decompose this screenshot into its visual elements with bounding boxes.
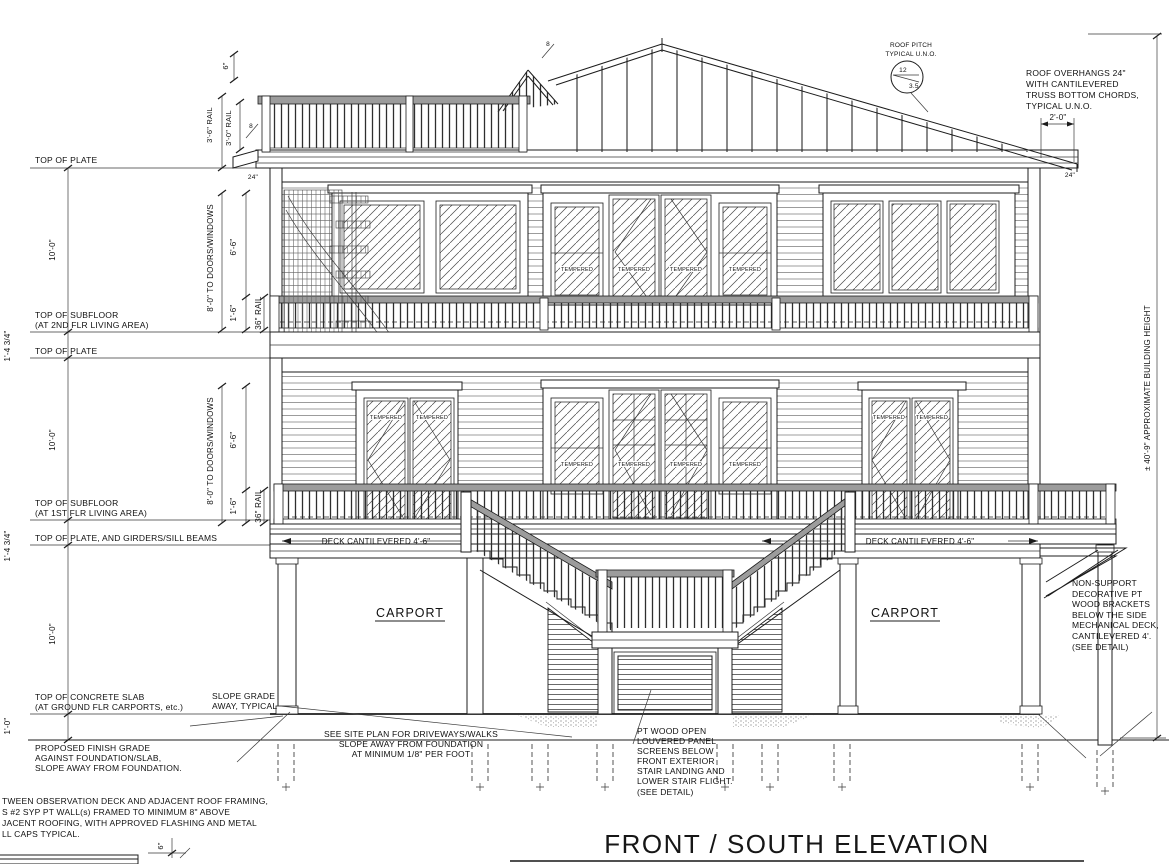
grade-note-line2: AGAINST FOUNDATION/SLAB, <box>35 753 161 763</box>
dim-plate-band-upper: 1'-4 3/4" <box>3 330 12 361</box>
roof-overhang-note: ROOF OVERHANGS 24" WITH CANTILEVERED TRU… <box>1026 68 1139 162</box>
tempered-label: TEMPERED <box>618 462 650 468</box>
third-floor-right-window <box>819 185 1019 301</box>
overhang-note-line4: TYPICAL U.N.O. <box>1026 101 1092 111</box>
drawing-title: FRONT / SOUTH ELEVATION <box>604 829 990 859</box>
bracket-note-line4: BELOW THE SIDE <box>1072 610 1147 620</box>
louver-note-line1: PT WOOD OPEN <box>637 726 706 736</box>
bracket-note-line5: MECHANICAL DECK, <box>1072 620 1159 630</box>
dim-24in-left: 24" <box>248 174 259 181</box>
elevation-sheet: TOP OF PLATE TOP OF SUBFLOOR (AT 2ND FLR… <box>0 0 1169 864</box>
louver-note-line4: FRONT EXTERIOR <box>637 756 715 766</box>
bracket-note-line2: DECORATIVE PT <box>1072 589 1142 599</box>
left-level-labels: TOP OF PLATE TOP OF SUBFLOOR (AT 2ND FLR… <box>35 155 217 773</box>
bottom-left-detail: 6" <box>0 838 190 864</box>
dim-3-6-rail: 3'-6" RAIL <box>205 107 214 143</box>
roof-pitch-note-line1: ROOF PITCH <box>890 42 932 49</box>
second-floor: TEMPERED TEMPERED TEMPERED TEMPERED TEMP… <box>270 358 1116 558</box>
eave-band <box>233 150 1078 168</box>
dim-grade-depth: 1'-0" <box>3 718 12 735</box>
tempered-label: TEMPERED <box>416 415 448 421</box>
title-block: FRONT / SOUTH ELEVATION <box>510 829 1084 861</box>
tempered-label: TEMPERED <box>729 267 761 273</box>
dim-1-6-3rd: 1'-6" <box>229 305 238 322</box>
louver-note-line2: LOUVERED PANEL <box>637 736 716 746</box>
grade-note-line1: PROPOSED FINISH GRADE <box>35 743 150 753</box>
third-floor: TEMPERED TEMPERED TEMPERED TEMPERED <box>270 168 1040 356</box>
dim-building-height: ± 40'-9" APPROXIMATE BUILDING HEIGHT <box>1143 305 1152 471</box>
dim-floor-height-1st: 10'-0" <box>48 623 57 645</box>
louvered-panel <box>598 648 732 714</box>
pitch-rise-label: 12 <box>899 67 907 74</box>
level-label-subfloor-1st: TOP OF SUBFLOOR <box>35 498 118 508</box>
site-note-line1: SEE SITE PLAN FOR DRIVEWAYS/WALKS <box>324 729 498 739</box>
louver-note-line6: LOWER STAIR FLIGHT. <box>637 776 733 786</box>
tempered-label: TEMPERED <box>729 462 761 468</box>
dim-deck-cantilever-right: DECK CANTILEVERED 4'-6" <box>866 537 975 546</box>
site-note-line2: SLOPE AWAY FROM FOUNDATION <box>339 739 483 749</box>
level-label-plate-girders: TOP OF PLATE, AND GIRDERS/SILL BEAMS <box>35 533 217 543</box>
tempered-label: TEMPERED <box>618 267 650 273</box>
roof-pitch-note-line2: TYPICAL U.N.O. <box>885 51 936 58</box>
louver-note-line3: SCREENS BELOW <box>637 746 714 756</box>
dim-6-6-3rd: 6'-6" <box>229 239 238 256</box>
overhang-note-line1: ROOF OVERHANGS 24" <box>1026 68 1126 78</box>
dim-deck-cantilever-left: DECK CANTILEVERED 4'-6" <box>322 537 431 546</box>
main-gable-roof <box>540 38 1080 172</box>
tempered-label: TEMPERED <box>561 267 593 273</box>
dim-2-0-overhang: 2'-0" <box>1050 113 1067 122</box>
carport-label-left: CARPORT <box>376 606 444 620</box>
dim-doors-windows-3rd: 8'-0" TO DOORS/WINDOWS <box>206 204 215 312</box>
dim-36-rail-3rd: 36" RAIL <box>254 296 263 330</box>
dim-36-rail-2nd: 36" RAIL <box>254 489 263 523</box>
tempered-label: TEMPERED <box>670 462 702 468</box>
window-dimension-chain-3rd: 8'-0" TO DOORS/WINDOWS 6'-6" 1'-6" 36" R… <box>206 190 268 333</box>
overhang-note-line2: WITH CANTILEVERED <box>1026 79 1119 89</box>
third-floor-center-doors: TEMPERED TEMPERED TEMPERED TEMPERED <box>541 185 779 305</box>
pitch-run-label: 3.5 <box>909 83 919 90</box>
tempered-label: TEMPERED <box>670 267 702 273</box>
dim-6in-fascia: 6" <box>221 62 230 69</box>
site-note-line3: AT MINIMUM 1/8" PER FOOT <box>352 749 470 759</box>
elevation-drawing: TOP OF PLATE TOP OF SUBFLOOR (AT 2ND FLR… <box>0 0 1169 864</box>
deck-railing <box>274 484 1116 524</box>
louver-note-line7: (SEE DETAIL) <box>637 787 694 797</box>
bracket-note-line6: CANTILEVERED 4'. <box>1072 631 1151 641</box>
tempered-label: TEMPERED <box>916 415 948 421</box>
overhang-note-line3: TRUSS BOTTOM CHORDS, <box>1026 90 1139 100</box>
level-label-subfloor-2nd-sub: (AT 2ND FLR LIVING AREA) <box>35 320 149 330</box>
dim-doors-windows-2nd: 8'-0" TO DOORS/WINDOWS <box>206 397 215 505</box>
level-label-slab: TOP OF CONCRETE SLAB <box>35 692 145 702</box>
stair-skirt-left <box>546 602 598 712</box>
dim-floor-height-3rd: 10'-0" <box>48 239 57 261</box>
bl-note-line1: TWEEN OBSERVATION DECK AND ADJACENT ROOF… <box>2 796 268 806</box>
floor-band <box>270 332 1040 372</box>
bl-note-line3: JACENT ROOFING, WITH APPROVED FLASHING A… <box>2 818 257 828</box>
dim-detail-6in: 6" <box>156 842 165 849</box>
stair-landing <box>592 570 738 648</box>
level-label-top-of-plate-2nd: TOP OF PLATE <box>35 346 98 356</box>
grade-note-line3: SLOPE AWAY FROM FOUNDATION. <box>35 763 182 773</box>
dim-floor-height-2nd: 10'-0" <box>48 429 57 451</box>
tempered-label: TEMPERED <box>561 462 593 468</box>
slope-mark-8-left: 8 <box>249 123 253 130</box>
dim-24in-right: 24" <box>1065 172 1076 179</box>
dim-3-0-rail: 3'-0" RAIL <box>224 110 233 146</box>
bottom-left-note: TWEEN OBSERVATION DECK AND ADJACENT ROOF… <box>2 796 268 839</box>
level-label-subfloor-2nd: TOP OF SUBFLOOR <box>35 310 118 320</box>
bracket-note-line3: WOOD BRACKETS <box>1072 599 1150 609</box>
level-label-subfloor-1st-sub: (AT 1ST FLR LIVING AREA) <box>35 508 147 518</box>
window-dimension-chain-2nd: 8'-0" TO DOORS/WINDOWS 6'-6" 1'-6" 36" R… <box>206 383 268 526</box>
tempered-label: TEMPERED <box>370 415 402 421</box>
louver-note-line5: STAIR LANDING AND <box>637 766 725 776</box>
bl-note-line2: S #2 SYP PT WALL(s) FRAMED TO MINIMUM 8"… <box>2 807 230 817</box>
tempered-label: TEMPERED <box>873 415 905 421</box>
slope-mark-8-gable: 8 <box>546 41 550 48</box>
grade-stipple <box>516 715 1062 729</box>
level-label-slab-sub: (AT GROUND FLR CARPORTS, etc.) <box>35 702 183 712</box>
slope-grade-line1: SLOPE GRADE <box>212 691 275 701</box>
bracket-note-line1: NON-SUPPORT <box>1072 578 1137 588</box>
slope-grade-line2: AWAY, TYPICAL <box>212 701 277 711</box>
dim-1-6-2nd: 1'-6" <box>229 498 238 515</box>
bl-note-line4: LL CAPS TYPICAL. <box>2 829 80 839</box>
level-label-top-of-plate-3rd: TOP OF PLATE <box>35 155 98 165</box>
dim-plate-band-lower: 1'-4 3/4" <box>3 530 12 561</box>
carport-label-right: CARPORT <box>871 606 939 620</box>
bracket-note: NON-SUPPORT DECORATIVE PT WOOD BRACKETS … <box>1072 578 1159 652</box>
dim-6-6-2nd: 6'-6" <box>229 432 238 449</box>
bracket-note-line7: (SEE DETAIL) <box>1072 642 1129 652</box>
roof-pitch-symbol: 12 3.5 ROOF PITCH TYPICAL U.N.O. <box>885 42 936 112</box>
